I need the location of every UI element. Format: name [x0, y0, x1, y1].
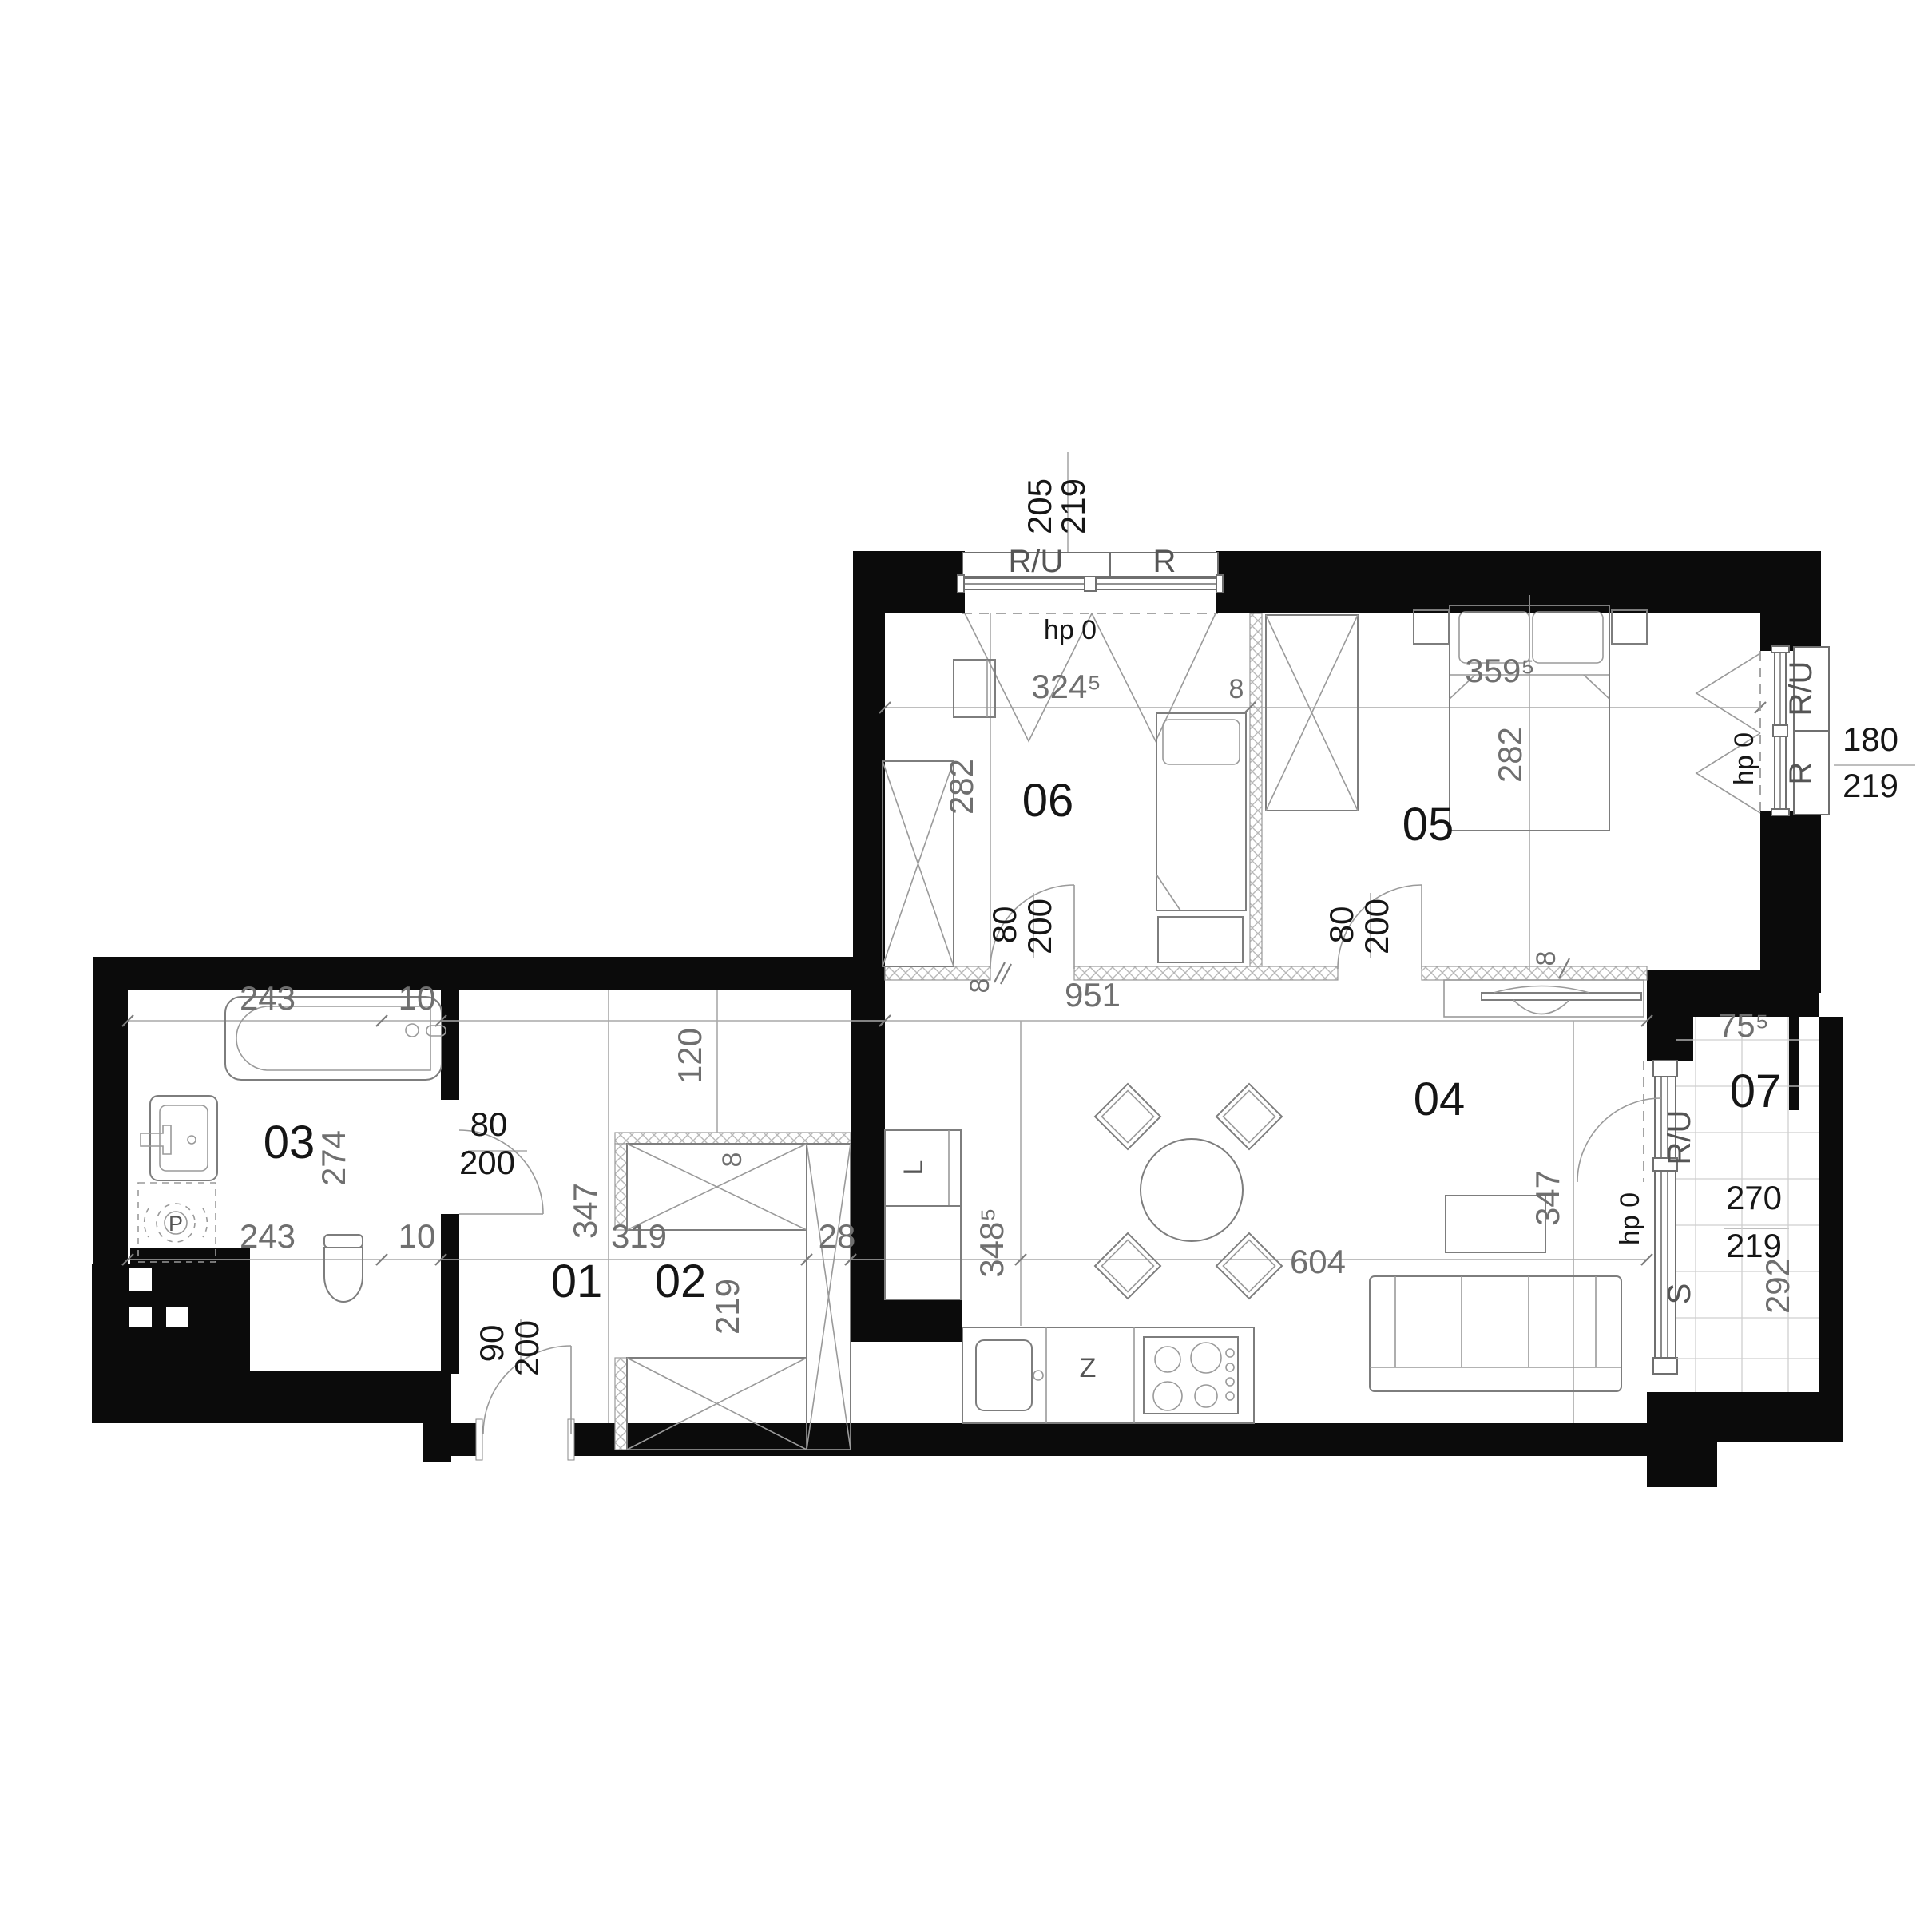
window-top-height-dim: 219 [1054, 478, 1092, 534]
nightstand [1158, 917, 1243, 962]
door05-height: 200 [1358, 899, 1395, 954]
dim-282-room05: 282 [1491, 727, 1529, 783]
chair [1216, 1084, 1282, 1149]
dim-75-5: 75⁵ [1718, 1006, 1769, 1044]
room-label-04: 04 [1414, 1073, 1466, 1125]
kitchen-sink-label: Z [1080, 1353, 1097, 1383]
dim-348-5: 348⁵ [973, 1208, 1010, 1278]
room05-furniture [1266, 605, 1647, 831]
entrance-door-height: 200 [508, 1320, 545, 1376]
dim-324-5: 324⁵ [1031, 668, 1101, 705]
dim-wall-8-room02: 8 [717, 1152, 748, 1168]
dim-10-bottom: 10 [399, 1217, 436, 1255]
fridge-label: L [899, 1160, 929, 1176]
room-label-06: 06 [1022, 775, 1074, 827]
door06-height: 200 [1021, 899, 1058, 954]
desk [954, 660, 995, 717]
labels-layer: R/U R 205 219 hp 0 324⁵ 8 282 06 80 200 … [169, 478, 1898, 1383]
dim-347-left: 347 [566, 1183, 604, 1239]
wardrobe-tall [807, 1144, 851, 1450]
door06-width: 80 [986, 906, 1023, 944]
dim-120: 120 [671, 1028, 708, 1084]
dim-wall-8: 8 [1229, 674, 1244, 704]
dim-292: 292 [1759, 1258, 1796, 1314]
door05-width: 80 [1323, 906, 1360, 944]
window-right-bottom-label: R [1783, 762, 1819, 785]
window-top-width-dim: 205 [1021, 478, 1058, 534]
nightstand [1414, 610, 1449, 644]
window-right-height-dim: 219 [1843, 767, 1898, 804]
radiator [1444, 980, 1644, 1017]
dim-wall-8-bottom06: 8 [965, 978, 995, 994]
room-label-03: 03 [264, 1117, 315, 1168]
room-label-07: 07 [1730, 1065, 1782, 1117]
entrance-door-width: 90 [473, 1325, 510, 1363]
wardrobe [1266, 615, 1358, 811]
cooktop [1144, 1337, 1238, 1414]
window-balcony-width-dim: 270 [1726, 1179, 1782, 1216]
chair [1095, 1233, 1160, 1299]
room-label-05: 05 [1402, 799, 1454, 851]
dining-table [1141, 1139, 1243, 1241]
sofa [1370, 1276, 1621, 1391]
door03-height: 200 [459, 1144, 515, 1181]
fridge [885, 1130, 961, 1299]
dim-282-room06: 282 [942, 759, 980, 815]
window-right-top-label: R/U [1783, 661, 1819, 716]
dim-243-bottom: 243 [240, 1217, 296, 1255]
dim-219-room02: 219 [708, 1279, 746, 1335]
room-label-02: 02 [655, 1256, 707, 1307]
window-top-hp-label: hp 0 [1044, 615, 1097, 645]
chair [1095, 1084, 1160, 1149]
dim-274: 274 [315, 1130, 352, 1186]
toilet [324, 1235, 363, 1302]
window-balcony-top-label: R/U [1662, 1110, 1697, 1165]
dim-319: 319 [611, 1217, 667, 1255]
door03-width: 80 [470, 1105, 508, 1143]
window-balcony-hp-label: hp 0 [1615, 1192, 1645, 1245]
walls-layer [92, 551, 1843, 1487]
dim-347-right: 347 [1529, 1170, 1566, 1226]
kitchen [885, 1130, 1254, 1423]
bed-single [1156, 713, 1246, 910]
window-top-right-label: R [1153, 544, 1176, 579]
nightstand [1612, 610, 1647, 644]
room-label-01: 01 [551, 1256, 603, 1307]
kitchen-sink [976, 1340, 1043, 1410]
dim-359-5: 359⁵ [1465, 652, 1535, 689]
washer-label: P [169, 1212, 183, 1236]
window-balcony-bottom-label: S [1662, 1283, 1697, 1305]
dim-243-top: 243 [240, 979, 296, 1017]
dim-951: 951 [1065, 976, 1121, 1014]
window-right-width-dim: 180 [1843, 720, 1898, 758]
dim-wall-8-bottom05: 8 [1531, 951, 1561, 966]
dim-10-top: 10 [399, 979, 436, 1017]
window-right-hp-label: hp 0 [1729, 732, 1759, 785]
chair [1216, 1233, 1282, 1299]
bathroom-sink [141, 1096, 217, 1180]
window-top-left-label: R/U [1009, 544, 1064, 579]
dim-28: 28 [819, 1217, 856, 1255]
floor-plan: R/U R 205 219 hp 0 324⁵ 8 282 06 80 200 … [0, 0, 1932, 1932]
dim-604: 604 [1290, 1243, 1346, 1280]
